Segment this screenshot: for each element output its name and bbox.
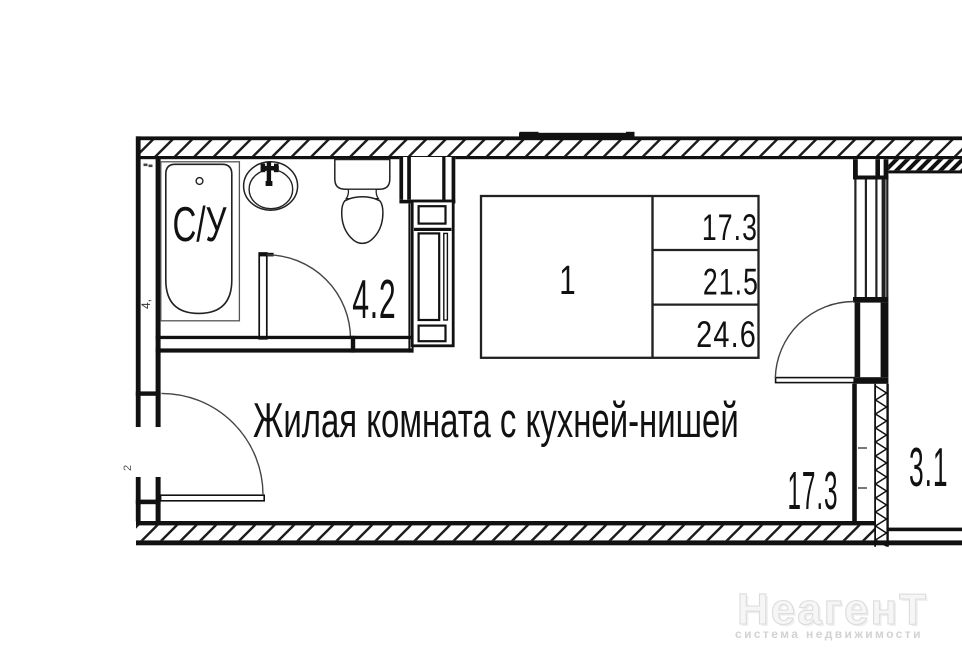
svg-text:3.1: 3.1	[909, 438, 949, 499]
svg-text:2: 2	[122, 465, 134, 471]
svg-text:Жилая комната с кухней-нишей: Жилая комната с кухней-нишей	[253, 392, 739, 447]
svg-text:С/У: С/У	[172, 196, 226, 251]
svg-text:4.2: 4.2	[352, 270, 396, 331]
svg-text:17.3: 17.3	[788, 460, 839, 521]
svg-text:1: 1	[559, 257, 575, 303]
svg-text:17.3: 17.3	[702, 207, 758, 248]
svg-text:система недвижимости: система недвижимости	[735, 627, 923, 641]
svg-text:24.6: 24.6	[696, 315, 757, 356]
svg-text:21.5: 21.5	[703, 261, 759, 302]
svg-text:4,: 4,	[139, 299, 153, 309]
